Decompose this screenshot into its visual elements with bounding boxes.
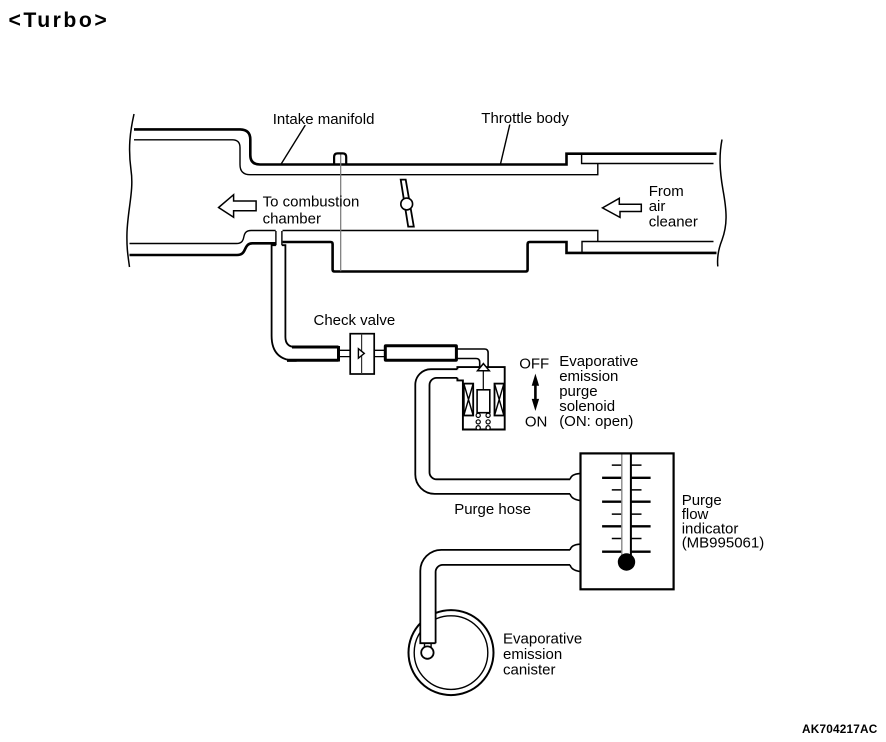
svg-text:Intake manifold: Intake manifold [273, 111, 375, 128]
svg-text:cleaner: cleaner [649, 214, 698, 231]
svg-text:chamber: chamber [263, 211, 321, 228]
svg-text:ON: ON [525, 413, 548, 430]
svg-text:<Turbo>: <Turbo> [9, 9, 110, 32]
svg-text:AK704217AC: AK704217AC [802, 722, 878, 736]
svg-text:Purge hose: Purge hose [454, 501, 531, 518]
svg-text:(ON: open): (ON: open) [559, 413, 633, 430]
svg-text:OFF: OFF [519, 356, 549, 373]
svg-text:Throttle body: Throttle body [481, 110, 569, 127]
svg-text:canister: canister [503, 662, 556, 679]
svg-text:Check valve: Check valve [314, 312, 396, 329]
svg-text:To combustion: To combustion [263, 194, 360, 211]
svg-text:Evaporative: Evaporative [503, 631, 582, 648]
svg-text:(MB995061): (MB995061) [682, 534, 765, 551]
